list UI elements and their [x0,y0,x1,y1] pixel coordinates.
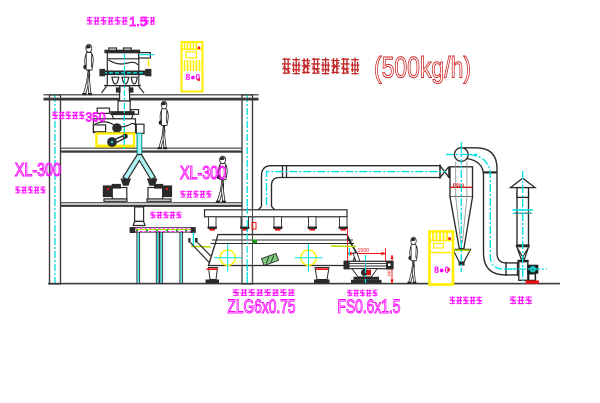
svg-text:1.5: 1.5 [129,14,147,29]
svg-text:XL-300: XL-300 [15,160,61,180]
svg-text:8●0: 8●0 [434,265,449,275]
svg-text:340: 340 [386,268,392,276]
svg-text:XL-300: XL-300 [180,163,226,183]
svg-text:(500kg/h): (500kg/h) [374,52,471,85]
svg-text:1500: 1500 [358,248,370,254]
svg-text:ZLG6x0.75: ZLG6x0.75 [228,297,296,318]
svg-text:FS0.6x1.5: FS0.6x1.5 [338,297,401,318]
svg-text:350: 350 [86,110,106,125]
